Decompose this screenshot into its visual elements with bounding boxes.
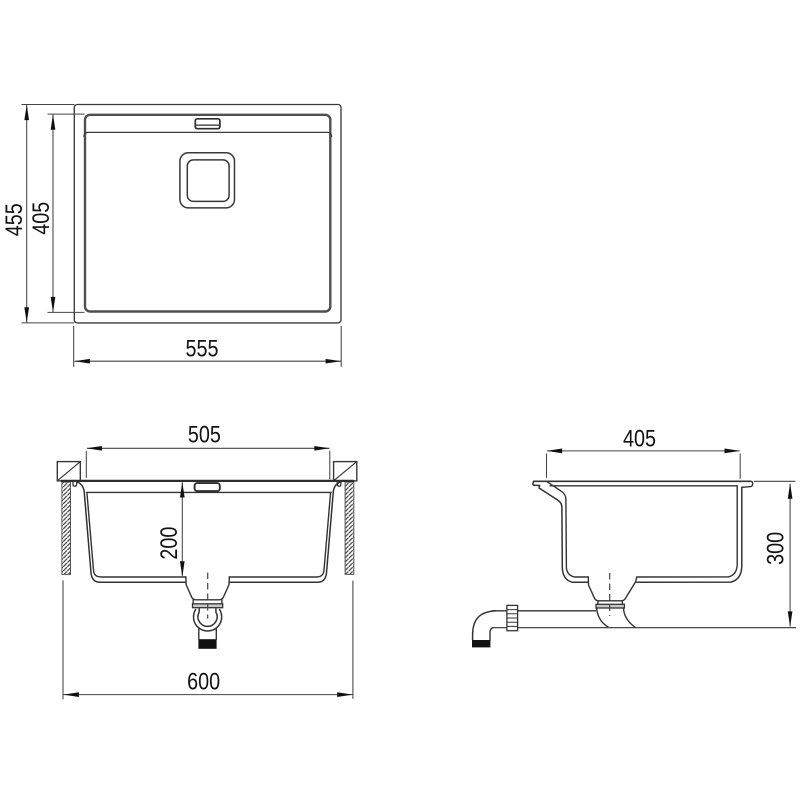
svg-text:505: 505 <box>188 422 221 449</box>
svg-text:405: 405 <box>623 425 656 452</box>
svg-text:555: 555 <box>186 335 219 362</box>
svg-text:200: 200 <box>156 527 183 560</box>
svg-text:405: 405 <box>28 202 55 235</box>
svg-text:600: 600 <box>187 669 220 696</box>
svg-text:300: 300 <box>763 532 790 565</box>
svg-text:455: 455 <box>1 203 28 236</box>
